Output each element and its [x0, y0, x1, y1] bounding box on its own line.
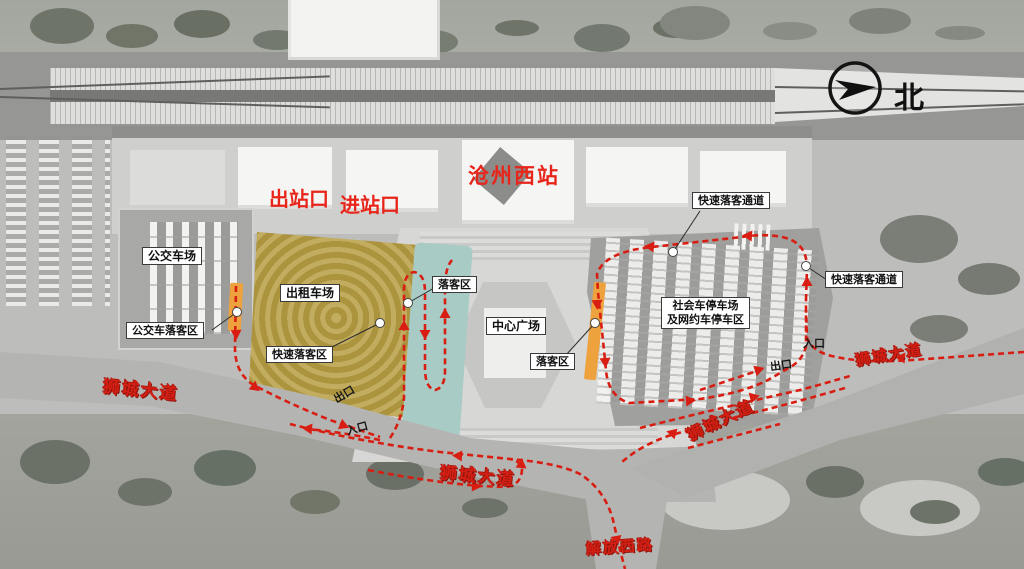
quick-dropoff-label: 快速落客区	[266, 346, 333, 363]
station-name-label: 沧州西站	[468, 160, 560, 190]
callout-dot	[802, 262, 811, 271]
bus-dropoff-label: 公交车落客区	[126, 322, 204, 339]
compass-north-label: 北	[894, 73, 924, 117]
leader-channel-top	[673, 211, 700, 252]
callout-dot	[669, 248, 678, 257]
leader-quick-dropoff	[330, 323, 380, 348]
compass-icon	[824, 58, 894, 120]
parking-entrance-label: 入口	[803, 335, 825, 351]
entry-gate-label: 进站口	[340, 189, 400, 218]
callout-dot	[376, 319, 385, 328]
station-area-map: 北	[0, 0, 1024, 569]
social-parking-label-line1: 社会车停车场	[667, 299, 744, 313]
bus-yard-label: 公交车场	[142, 247, 202, 265]
exit-gate-label: 出站口	[269, 183, 329, 212]
channel-right-label: 快速落客通道	[825, 271, 903, 288]
central-plaza-label: 中心广场	[486, 317, 546, 335]
route-avenue-main	[290, 424, 625, 569]
dropoff-right-label: 落客区	[530, 353, 575, 370]
callout-dot	[233, 308, 242, 317]
taxi-yard-label: 出租车场	[280, 284, 340, 302]
leader-dropoff-right	[566, 323, 595, 355]
parking-exit-label: 出口	[769, 356, 793, 375]
social-parking-label: 社会车停车场 及网约车停车区	[661, 297, 750, 329]
callout-dot	[591, 319, 600, 328]
dropoff-left-label: 落客区	[432, 276, 477, 293]
callout-dot	[404, 299, 413, 308]
channel-top-label: 快速落客通道	[692, 192, 770, 209]
social-parking-label-line2: 及网约车停车区	[667, 313, 744, 327]
